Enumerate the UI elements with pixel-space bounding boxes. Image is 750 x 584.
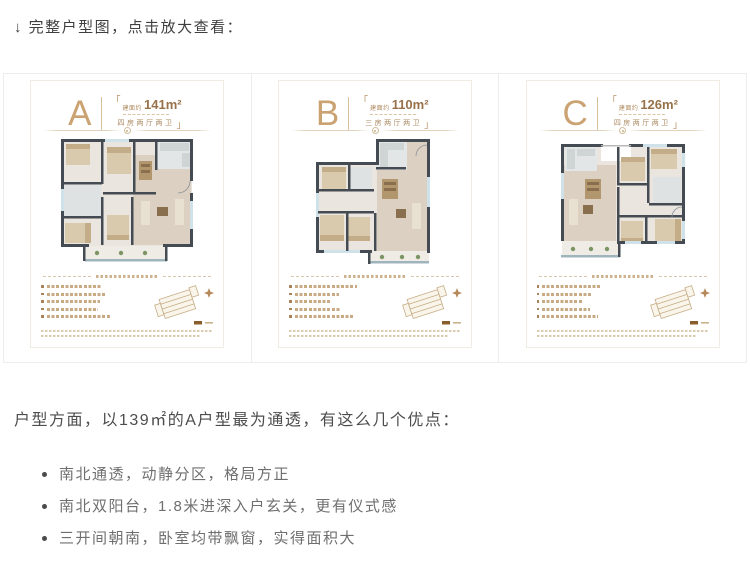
header-divider [597, 97, 598, 130]
site-plan-minimap [398, 284, 464, 328]
micro-caption [592, 275, 654, 278]
compass-icon [204, 288, 214, 298]
header-divider [348, 97, 349, 130]
ornament-divider [291, 126, 459, 135]
floor-plan-c-drawing [559, 137, 687, 261]
enlarge-hint-text: ↓ 完整户型图，点击放大查看： [14, 16, 243, 37]
floorplan-panel-b: B 「 建面约 110m² 三房两厅两卫 」 [251, 74, 500, 362]
feature-micro-list [289, 285, 357, 318]
site-plan-minimap [150, 284, 216, 328]
medal-ornament-icon [124, 127, 131, 134]
medal-ornament-icon [619, 127, 626, 134]
card-c-info [537, 284, 712, 328]
benefit-item: 南北通透，动静分区，格局方正 [42, 466, 398, 483]
disclaimer-micro-text [41, 330, 213, 337]
floorplan-card-c[interactable]: C 「 建面约 126m² 四房两厅两卫 」 [526, 80, 720, 348]
micro-caption [344, 275, 406, 278]
micro-caption-divider [539, 274, 707, 279]
plan-a-spec: 「 建面约 141m² 四房两厅两卫 」 [111, 98, 187, 128]
area-prefix: 建面约 [123, 103, 143, 112]
legend-swatch [194, 321, 202, 325]
floor-plan-a-drawing [57, 137, 197, 265]
area-prefix: 建面约 [619, 103, 639, 112]
micro-underline [619, 114, 665, 115]
quote-open: 「 [358, 97, 368, 107]
micro-caption-divider [291, 274, 459, 279]
compass-icon [452, 288, 462, 298]
floor-plan-c-image[interactable] [559, 137, 687, 266]
floorplan-card-b[interactable]: B 「 建面约 110m² 三房两厅两卫 」 [278, 80, 472, 348]
quote-open: 「 [607, 97, 617, 107]
floor-plan-b-drawing [314, 137, 436, 265]
ornament-divider [539, 126, 707, 135]
floorplan-panel-a: A 「 建面约 141m² 四房两厅两卫 」 [4, 74, 251, 362]
floor-plan-a-image[interactable] [57, 137, 197, 270]
micro-caption [96, 275, 158, 278]
area-value: 110m² [392, 98, 429, 112]
micro-underline [370, 114, 416, 115]
legend-swatch [690, 321, 698, 325]
benefit-item: 南北双阳台，1.8米进深入户玄关，更有仪式感 [42, 498, 398, 515]
feature-micro-list [41, 285, 110, 318]
plan-b-spec: 「 建面约 110m² 三房两厅两卫 」 [358, 98, 434, 128]
card-a-info [41, 284, 216, 328]
floorplan-cards-strip: A 「 建面约 141m² 四房两厅两卫 」 [3, 73, 747, 363]
quote-open: 「 [111, 97, 121, 107]
article-intro-text: 户型方面，以139㎡的A户型最为通透，有这么几个优点： [14, 406, 460, 430]
card-b-info [289, 284, 464, 328]
plan-c-spec: 「 建面约 126m² 四房两厅两卫 」 [607, 98, 683, 128]
bullet-dot [42, 504, 47, 509]
bullet-dot [42, 472, 47, 477]
micro-caption-divider [43, 274, 211, 279]
benefit-list: 南北通透，动静分区，格局方正 南北双阳台，1.8米进深入户玄关，更有仪式感 三开… [42, 466, 398, 562]
area-value: 141m² [144, 98, 182, 112]
site-plan-minimap [646, 284, 712, 328]
floorplan-card-a[interactable]: A 「 建面约 141m² 四房两厅两卫 」 [30, 80, 224, 348]
ornament-divider [43, 126, 211, 135]
micro-underline [123, 114, 169, 115]
legend-swatch [442, 321, 450, 325]
bullet-dot [42, 536, 47, 541]
floor-plan-b-image[interactable] [314, 137, 436, 270]
area-value: 126m² [640, 98, 678, 112]
disclaimer-micro-text [537, 330, 709, 337]
benefit-item: 三开间朝南，卧室均带飘窗，实得面积大 [42, 530, 398, 547]
medal-ornament-icon [372, 127, 379, 134]
header-divider [101, 97, 102, 130]
floorplan-panel-c: C 「 建面约 126m² 四房两厅两卫 」 [499, 74, 746, 362]
disclaimer-micro-text [289, 330, 461, 337]
feature-micro-list [537, 285, 601, 318]
compass-icon [700, 288, 710, 298]
area-prefix: 建面约 [370, 103, 390, 112]
